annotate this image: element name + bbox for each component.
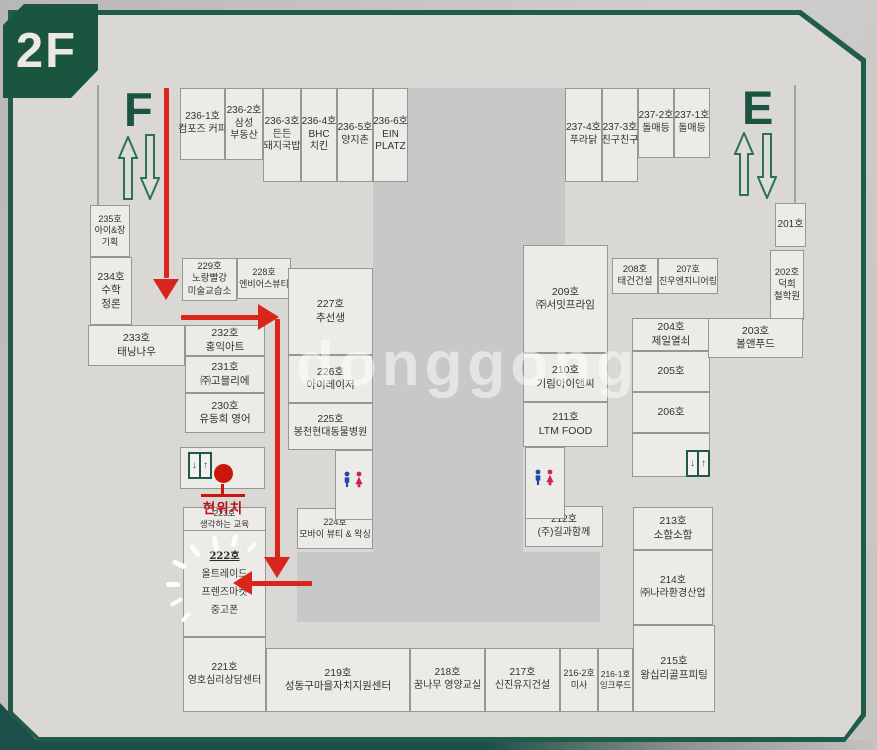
room-237-4-line: 237-4호 xyxy=(566,122,601,135)
room-229-line: 미술교습소 xyxy=(188,286,232,298)
room-206-line: 206호 xyxy=(657,406,684,419)
room-221-line: 221호 xyxy=(212,662,238,675)
elevator-icon: ↓↑ xyxy=(188,452,212,479)
room-217: 217호신진유지건설 xyxy=(485,648,560,712)
room-216-1-line: 잉크루드 xyxy=(600,680,631,691)
room-228-line: 엔비어스뷰티 xyxy=(239,279,289,291)
room-205-line: 205호 xyxy=(657,365,684,378)
floor-label-badge: 2F xyxy=(3,4,98,98)
room-236-4: 236-4호BHC치킨 xyxy=(301,88,337,182)
room-219-line: 성동구마을자치지원센터 xyxy=(285,680,391,693)
room-232-line: 홍익아트 xyxy=(206,341,245,354)
room-219: 219호성동구마을자치지원센터 xyxy=(266,648,410,712)
toilet-male-figure xyxy=(345,472,350,487)
room-236-6-line: 236-6호 xyxy=(373,116,408,129)
route-arrowhead-down xyxy=(153,279,179,300)
room-219-line: 219호 xyxy=(324,667,351,680)
room-237-3: 237-3호친구친구 xyxy=(602,88,638,182)
room-229-line: 노랑빨강 xyxy=(192,273,227,285)
room-231-line: ㈜고믈리에 xyxy=(200,375,249,388)
room-209-line: 209호 xyxy=(552,286,579,299)
room-218-line: 218호 xyxy=(435,667,461,680)
room-204-line: 제일열쇠 xyxy=(652,335,691,348)
room-221-line: 영호심리상담센터 xyxy=(188,675,262,688)
room-236-5: 236-5호양지촌 xyxy=(337,88,373,182)
room-226: 226호아이레이저 xyxy=(288,355,373,403)
room-216-2-line: 216-2호 xyxy=(563,668,594,680)
room-210-line: 기림아이앤씨 xyxy=(537,378,595,391)
room-211: 211호LTM FOOD xyxy=(523,402,608,447)
room-230-line: 유동희 영어 xyxy=(199,413,250,426)
courtyard-area xyxy=(373,182,523,560)
route-line xyxy=(164,88,169,278)
room-214-line: 214호 xyxy=(660,575,686,588)
room-230: 230호유동희 영어 xyxy=(185,393,265,433)
stairs-up-arrow-icon xyxy=(118,136,138,200)
room-215: 215호왕십리골프피팅 xyxy=(633,625,715,712)
room-233-line: 태닝나우 xyxy=(117,346,156,359)
room-231: 231호㈜고믈리에 xyxy=(185,356,265,393)
room-207-line: 진우엔지니어링 xyxy=(659,276,717,288)
room-237-1-line: 237-1호 xyxy=(675,110,710,123)
room-216-1-line: 216-1호 xyxy=(601,669,631,680)
room-237-4-line: 푸라닭 xyxy=(570,135,598,148)
stairwell-f-label: F xyxy=(124,86,153,133)
room-236-6-line: PLATZ xyxy=(375,141,405,154)
room-237-2-line: 돌매등 xyxy=(642,123,670,136)
room-211-line: 211호 xyxy=(552,411,578,424)
room-236-6-line: EIN xyxy=(382,129,399,142)
stairs-up-arrow-icon xyxy=(734,132,754,196)
room-205: 205호 xyxy=(632,351,710,392)
room-226-line: 226호 xyxy=(317,366,344,379)
room-213: 213호소함소함 xyxy=(633,507,713,550)
room-201: 201호 xyxy=(775,203,806,247)
room-236-2: 236-2호삼성부동산 xyxy=(225,88,263,160)
room-202: 202호덕희철학원 xyxy=(770,250,804,320)
room-234-line: 수학 xyxy=(101,284,120,297)
room-229-line: 229호 xyxy=(197,261,222,273)
room-227: 227호추선생 xyxy=(288,268,373,355)
room-206: 206호 xyxy=(632,392,710,433)
room-235-line: 기획 xyxy=(102,237,119,249)
room-234-line: 정론 xyxy=(101,298,120,311)
toilet-icon xyxy=(342,471,366,488)
room-236-6: 236-6호EINPLATZ xyxy=(373,88,408,182)
route-arrowhead-left xyxy=(233,571,252,595)
room-207-line: 207호 xyxy=(676,264,699,276)
room-232: 232호홍익아트 xyxy=(185,325,265,356)
room-202-line: 철학원 xyxy=(774,291,800,303)
room-236-1: 236-1호컴포즈 커피 xyxy=(180,88,225,160)
toilet-female-figure xyxy=(355,472,362,488)
toilet-female-figure xyxy=(546,470,553,486)
room-217-line: 217호 xyxy=(510,667,536,680)
route-line xyxy=(252,581,312,586)
room-237-2: 237-2호돌매등 xyxy=(638,88,674,158)
room-227-line: 추선생 xyxy=(316,312,345,325)
room-208: 208호태건건설 xyxy=(612,258,658,294)
room-235: 235호아이&장기획 xyxy=(90,205,130,257)
room-203-line: 볼앤푸드 xyxy=(736,338,775,351)
highlight-ray xyxy=(166,582,180,587)
current-location-dot xyxy=(214,464,233,483)
toilet-male-figure xyxy=(536,470,541,485)
room-236-2-line: 236-2호 xyxy=(227,105,262,118)
room-209: 209호㈜서밋프라임 xyxy=(523,245,608,353)
room-235-line: 235호 xyxy=(98,214,121,226)
stairwell-e-label: E xyxy=(742,84,773,131)
room-235-line: 아이&장 xyxy=(95,225,126,237)
room-230-line: 230호 xyxy=(211,400,238,413)
wall-line xyxy=(97,85,99,205)
stairs-down-arrow-icon xyxy=(757,133,777,199)
room-216-1: 216-1호잉크루드 xyxy=(598,648,633,712)
wall-line xyxy=(794,85,796,205)
room-237-1-line: 돌매등 xyxy=(678,123,706,136)
room-222-line: 중고폰 xyxy=(211,602,239,620)
room-236-4-line: 치킨 xyxy=(310,141,328,154)
room-233: 233호태닝나우 xyxy=(88,325,185,366)
room-237-2-line: 237-2호 xyxy=(639,110,674,123)
room-236-1-line: 236-1호 xyxy=(185,111,220,124)
room-229: 229호노랑빨강미술교습소 xyxy=(182,258,237,301)
room-233-line: 233호 xyxy=(123,332,150,345)
room-236-3-line: 236-3호 xyxy=(265,116,300,129)
room-237-4: 237-4호푸라닭 xyxy=(565,88,602,182)
room-214: 214호㈜나라환경산업 xyxy=(633,550,713,625)
room-236-4-line: 236-4호 xyxy=(302,116,337,129)
room-218: 218호꿈나무 영양교실 xyxy=(410,648,485,712)
room-213-line: 213호 xyxy=(659,515,686,528)
room-211-line: LTM FOOD xyxy=(539,425,592,438)
room-236-3-line: 돼지국밥 xyxy=(264,141,301,154)
room-234-line: 234호 xyxy=(97,271,124,284)
room-216-2: 216-2호미사 xyxy=(560,648,598,712)
room-203-line: 203호 xyxy=(742,325,769,338)
room-236-5-line: 236-5호 xyxy=(338,122,373,135)
room-234: 234호수학정론 xyxy=(90,257,132,325)
room-236-3: 236-3호든든돼지국밥 xyxy=(263,88,301,182)
room-217-line: 신진유지건설 xyxy=(495,680,550,693)
route-line xyxy=(181,315,259,320)
room-232-line: 232호 xyxy=(211,327,238,340)
room-221: 221호영호심리상담센터 xyxy=(183,637,266,712)
room-225-line: 봉천현대동물병원 xyxy=(294,427,368,440)
room-203: 203호볼앤푸드 xyxy=(708,318,803,358)
room-236-2-line: 부동산 xyxy=(230,130,258,143)
room-209-line: ㈜서밋프라임 xyxy=(536,299,595,312)
room-224-line: 모바이 뷰티 & 왁싱 xyxy=(299,529,370,541)
room-204-line: 204호 xyxy=(657,321,684,334)
room-208-line: 208호 xyxy=(623,264,648,276)
current-location-pointer xyxy=(221,484,224,494)
room-215-line: 215호 xyxy=(660,655,687,668)
room-204: 204호제일열쇠 xyxy=(632,318,710,351)
room-216-2-line: 미사 xyxy=(571,680,588,692)
floor-label: 2F xyxy=(16,23,77,79)
room-236-1-line: 컴포즈 커피 xyxy=(178,124,227,137)
room-208-line: 태건건설 xyxy=(618,276,653,288)
room-237-3-line: 친구친구 xyxy=(602,135,639,148)
room-236-3-line: 든든 xyxy=(273,129,291,142)
room-207: 207호진우엔지니어링 xyxy=(658,258,718,294)
current-location-label: 현위치 xyxy=(195,497,251,517)
stairs-down-arrow-icon xyxy=(140,134,160,200)
room-228: 228호엔비어스뷰티 xyxy=(237,258,291,299)
room-231-line: 231호 xyxy=(211,361,238,374)
elevator-icon: ↓↑ xyxy=(686,450,710,477)
room-213-line: 소함소함 xyxy=(654,529,693,542)
route-arrowhead-right xyxy=(258,304,279,330)
room-223-line: 생각하는 교육 xyxy=(200,519,249,530)
room-236-2-line: 삼성 xyxy=(235,118,253,131)
room-227-line: 227호 xyxy=(317,298,344,311)
room-225: 225호봉천현대동물병원 xyxy=(288,403,373,450)
room-237-3-line: 237-3호 xyxy=(603,122,638,135)
courtyard-area xyxy=(297,552,600,622)
room-236-4-line: BHC xyxy=(308,129,329,142)
room-225-line: 225호 xyxy=(318,414,344,427)
room-215-line: 왕십리골프피팅 xyxy=(640,669,708,682)
room-226-line: 아이레이저 xyxy=(306,379,354,392)
room-236-5-line: 양지촌 xyxy=(341,135,369,148)
room-210: 210호기림아이앤씨 xyxy=(523,353,608,402)
room-218-line: 꿈나무 영양교실 xyxy=(414,680,481,693)
room-210-line: 210호 xyxy=(552,364,579,377)
room-214-line: ㈜나라환경산업 xyxy=(640,588,705,601)
room-212-line: (주)길과함께 xyxy=(538,527,591,540)
room-202-line: 덕희 xyxy=(778,279,795,291)
room-201-line: 201호 xyxy=(778,219,804,232)
room-228-line: 228호 xyxy=(252,267,275,279)
toilet-icon xyxy=(533,469,557,486)
route-line xyxy=(275,319,280,559)
room-202-line: 202호 xyxy=(775,267,800,279)
route-arrowhead-down xyxy=(264,557,290,578)
room-237-1: 237-1호돌매등 xyxy=(674,88,710,158)
